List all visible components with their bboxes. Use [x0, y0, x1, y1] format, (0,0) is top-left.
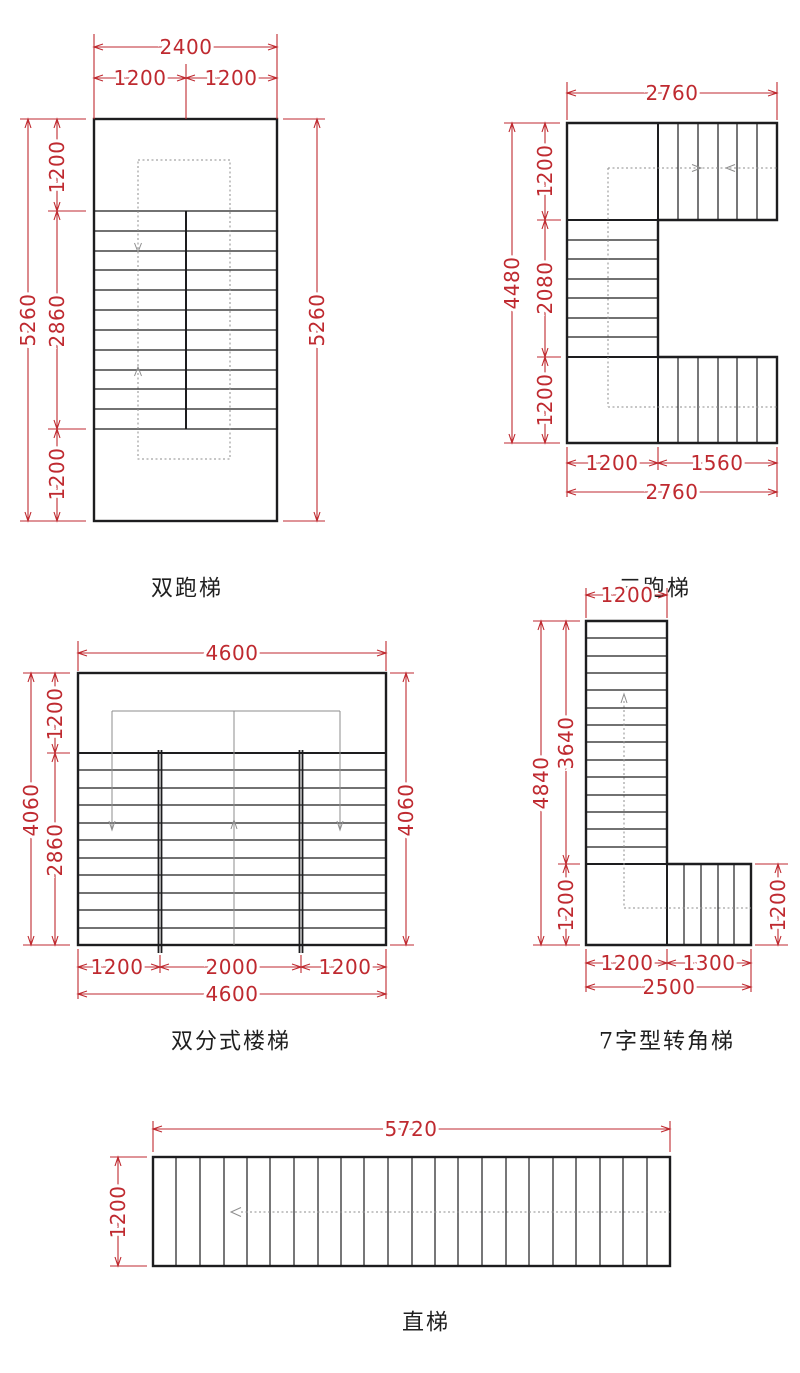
dim-text: 1200 [45, 448, 69, 501]
diagram-straight: 5720 1200 直梯 [106, 1117, 670, 1336]
dim-text: 1200 [601, 583, 654, 607]
dim-text: 1200 [601, 951, 654, 975]
dim-text: 3640 [554, 717, 578, 770]
straight-label: 直梯 [402, 1311, 450, 1336]
dim-text: 1200 [114, 66, 167, 90]
dim-text: 5720 [385, 1117, 438, 1141]
dim-text: 1200 [45, 141, 69, 194]
dim-text: 2860 [43, 824, 67, 877]
dim-text: 2500 [643, 975, 696, 999]
dim-text: 1200 [205, 66, 258, 90]
corner-7-label: 7字型转角梯 [599, 1030, 735, 1055]
dim-text: 1560 [691, 451, 744, 475]
three-run-tread-lines [567, 123, 757, 443]
walkline-arrow-icon [109, 820, 343, 830]
corner-7-tread-lines [586, 638, 734, 945]
three-run-dimensions: 2760 4480 1200 2080 1200 1200 1560 2760 [500, 81, 777, 504]
dim-text: 1200 [586, 451, 639, 475]
dimension-lines [110, 1121, 670, 1266]
corner-7-landing-boundaries [586, 864, 667, 945]
corner-7-outline [586, 621, 751, 945]
walkline-path [624, 701, 751, 908]
dim-text: 1200 [91, 955, 144, 979]
diagram-three-run: 2760 4480 1200 2080 1200 1200 1560 2760 … [500, 81, 777, 602]
double-run-dimensions: 2400 1200 1200 5260 1200 2860 1200 5260 [16, 34, 329, 521]
dim-text: 1200 [43, 688, 67, 741]
double-run-label: 双跑梯 [151, 577, 223, 602]
dim-text: 4060 [19, 784, 43, 837]
dim-text: 1200 [533, 374, 557, 427]
dim-text: 1200 [319, 955, 372, 979]
dim-text: 4840 [529, 757, 553, 810]
corner-7-walkline [621, 694, 751, 908]
walkline-arrow-icon [231, 1208, 241, 1217]
dim-text: 2760 [646, 480, 699, 504]
dim-text: 4060 [394, 784, 418, 837]
three-run-landing-boundaries [567, 123, 658, 443]
dim-text: 1300 [683, 951, 736, 975]
dim-text: 1200 [554, 879, 578, 932]
dim-text: 1200 [533, 145, 557, 198]
stair-plan-drawing: 2400 1200 1200 5260 1200 2860 1200 5260 … [0, 0, 800, 1373]
dim-text: 1200 [766, 879, 790, 932]
dim-text: 4480 [500, 257, 524, 310]
double-split-handrails [159, 750, 303, 953]
dim-text: 2080 [533, 262, 557, 315]
three-run-outline [567, 123, 777, 443]
dim-text: 2400 [160, 35, 213, 59]
walkline-path [608, 168, 777, 407]
diagram-double-run: 2400 1200 1200 5260 1200 2860 1200 5260 … [16, 34, 329, 602]
straight-walkline [231, 1208, 670, 1217]
double-split-label: 双分式楼梯 [171, 1030, 291, 1055]
dim-text: 2860 [45, 295, 69, 348]
dim-text: 5260 [305, 294, 329, 347]
drawing-svg: 2400 1200 1200 5260 1200 2860 1200 5260 … [0, 0, 800, 1373]
diagram-corner-7: 1200 4840 3640 1200 1200 1200 1300 2500 … [529, 583, 790, 1055]
dim-text: 4600 [206, 982, 259, 1006]
dim-text: 4600 [206, 641, 259, 665]
dim-text: 5260 [16, 294, 40, 347]
dim-text: 1200 [106, 1186, 130, 1239]
diagram-double-split: 4600 4060 1200 2860 4060 1200 2000 1200 … [19, 641, 418, 1055]
dim-text: 2000 [206, 955, 259, 979]
dim-text: 2760 [646, 81, 699, 105]
three-run-walkline [608, 165, 777, 408]
